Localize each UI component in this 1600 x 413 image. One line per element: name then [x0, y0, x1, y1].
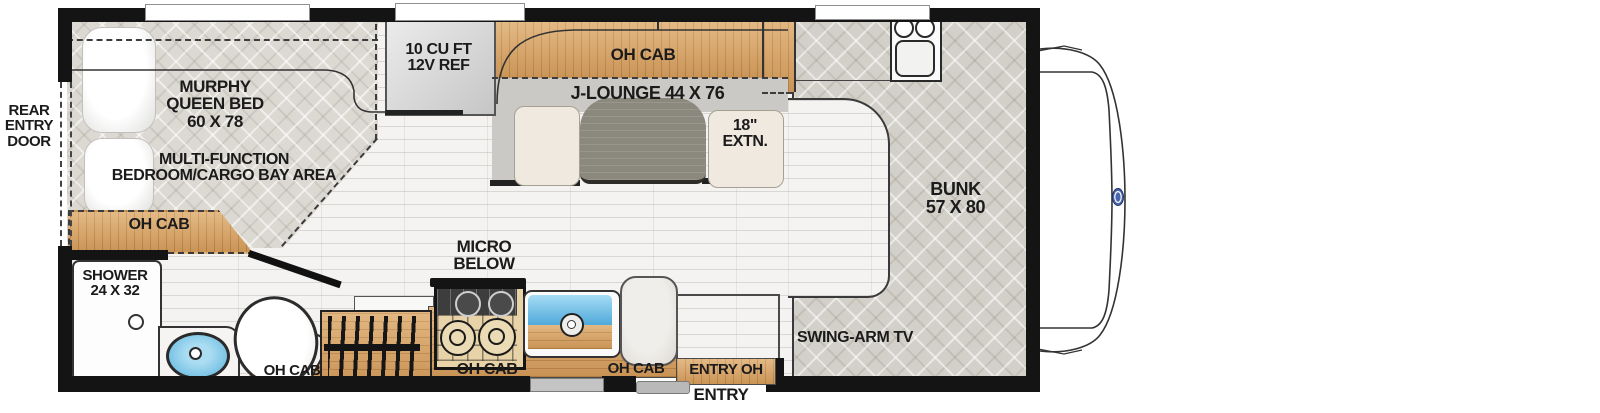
shower-drain	[128, 314, 144, 330]
wall-left-bottom	[58, 246, 72, 392]
slide-dash-right	[375, 24, 377, 140]
range-burner-ring	[449, 329, 466, 346]
rear-entry-door-label: REAR ENTRY DOOR	[0, 103, 58, 149]
window-top-1	[145, 4, 310, 21]
entry-label: ENTRY	[682, 386, 760, 403]
vanity-faucet	[189, 347, 202, 360]
galley-floor-recess	[788, 98, 890, 298]
swing-arm-tv-label: SWING-ARM TV	[797, 330, 945, 346]
rear-entry-door-dashes	[60, 82, 72, 246]
side-mirrors	[1038, 46, 1082, 354]
wall-bottom-b	[602, 376, 636, 392]
stairs-rail	[324, 344, 420, 351]
extension-label: 18" EXTN.	[712, 118, 778, 151]
column-dash	[762, 92, 792, 94]
bunk-label: BUNK 57 X 80	[898, 180, 1013, 217]
entry-area-outline	[676, 294, 780, 364]
lounge-dash	[492, 77, 788, 79]
entry-oh-label: ENTRY OH	[678, 362, 774, 377]
window-top-2	[395, 3, 525, 21]
floorplan-canvas: REAR ENTRY DOOR MURPHY QUEEN BED 60 X 78…	[0, 0, 1600, 413]
counter-chair	[620, 276, 678, 366]
galley-sink-basin	[895, 40, 935, 77]
window-bottom	[530, 378, 604, 392]
cab-hood-outline	[1040, 48, 1125, 352]
cab-windshield-line	[1040, 72, 1112, 328]
window-top-3	[815, 5, 930, 20]
refrigerator-label: 10 CU FT 12V REF	[391, 42, 486, 75]
range-hood-bar	[430, 278, 526, 287]
murphy-bed-label: MURPHY QUEEN BED 60 X 78	[145, 78, 285, 130]
wall-left-top	[58, 8, 72, 82]
ford-logo	[1113, 189, 1124, 206]
oh-cab-galley-label: OH CAB	[588, 46, 698, 63]
oh-cab-range-label: OH CAB	[438, 362, 536, 378]
ref-base	[385, 110, 463, 115]
multi-function-label: MULTI-FUNCTION BEDROOM/CARGO BAY AREA	[98, 152, 350, 185]
shower-label: SHOWER 24 X 32	[75, 268, 155, 299]
wall-bottom-c	[766, 376, 1040, 392]
j-lounge-label: J-LOUNGE 44 X 76	[540, 84, 755, 102]
oh-cab-bedroom-label: OH CAB	[84, 217, 234, 233]
range-burner-small	[455, 291, 481, 317]
ford-logo-ring	[1115, 192, 1121, 203]
oh-cab-bath-label: OH CAB	[252, 363, 332, 378]
oh-cab-sink-label: OH CAB	[596, 361, 676, 376]
dinette-table	[580, 98, 706, 184]
kitchen-faucet-dot	[567, 320, 576, 329]
lounge-cushion-left	[514, 106, 580, 186]
range-burner-ring	[488, 328, 505, 345]
micro-below-label: MICRO BELOW	[432, 238, 536, 273]
bath-wall	[60, 250, 168, 260]
slide-dash-top	[67, 39, 378, 41]
wall-right-cab	[1026, 8, 1040, 392]
range-burner-small	[488, 291, 514, 317]
